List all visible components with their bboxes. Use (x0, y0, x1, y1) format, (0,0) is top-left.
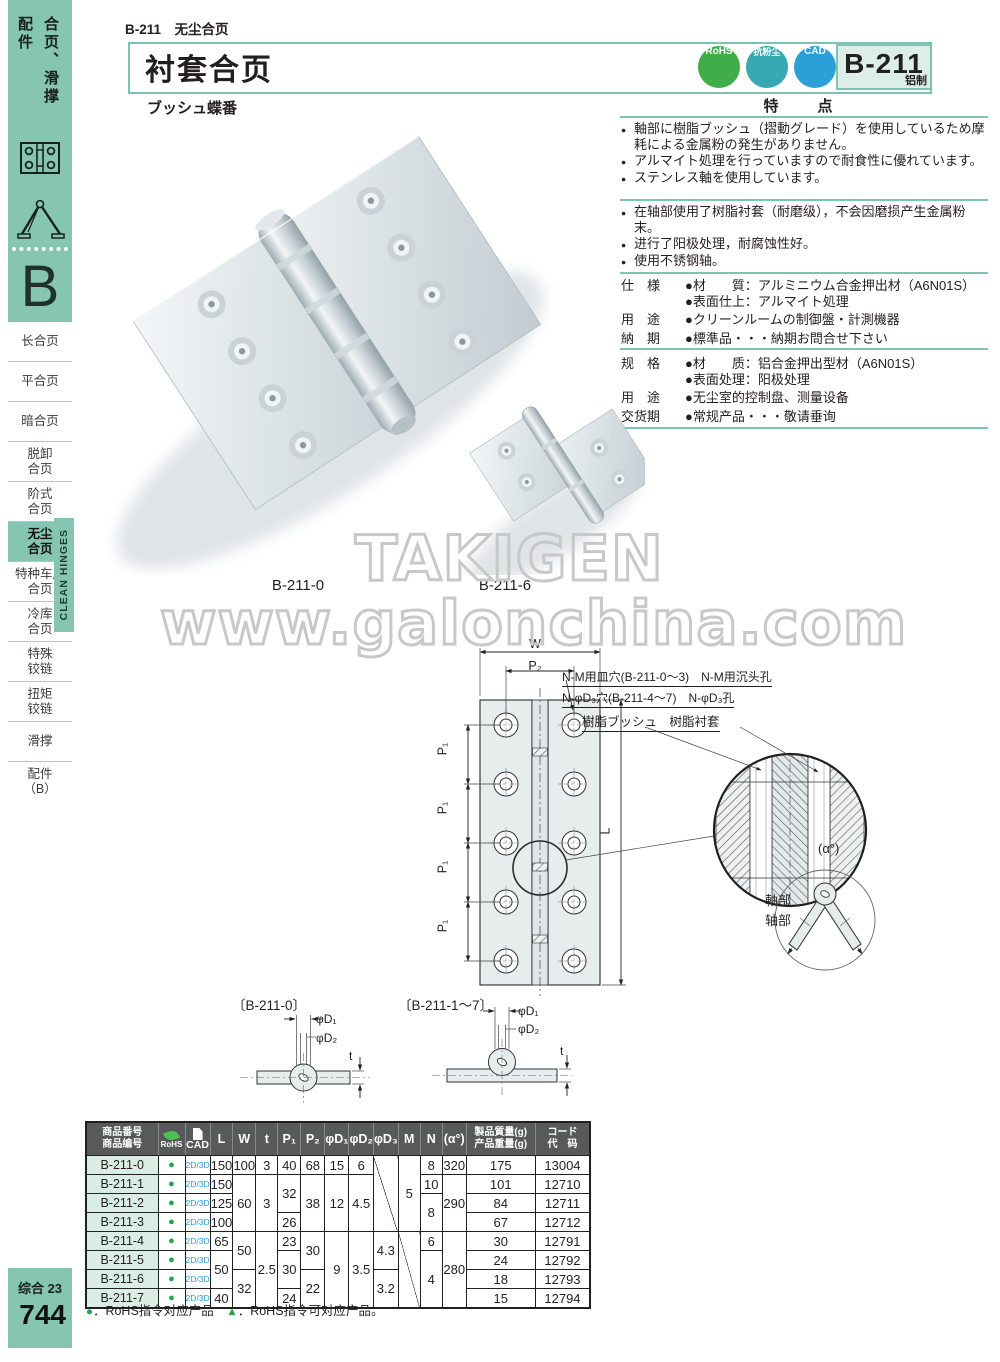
col-header-code: コード代 码 (535, 1122, 590, 1156)
value-cell: 32 (278, 1175, 301, 1213)
rohs-dot-cell: ● (158, 1175, 185, 1194)
sidebar-item-阶式合页: 阶式合页 (8, 481, 72, 521)
spec-row: 仕 様●材 質：アルミニウム合金押出材（A6N01S）●表面仕上：アルマイト処理 (621, 278, 988, 309)
clean-hinges-label: CLEAN HINGES (58, 529, 70, 620)
sidebar-item-扭矩铰链: 扭矩铰链 (8, 681, 72, 721)
value-cell: 15 (466, 1289, 535, 1309)
rohs-dot-cell: ● (158, 1194, 185, 1213)
value-cell: 24 (466, 1251, 535, 1270)
sidebar-footer-block: 综合 23 744 (8, 1268, 72, 1348)
sidebar-category-right: 合页、滑撑 (40, 16, 61, 106)
spec-table: 商品番号商品编号RoHSCADLWtP₁P₂φD₁φD₂φD₃MN(α°)製品質… (85, 1121, 591, 1309)
value-cell: 12710 (535, 1175, 590, 1194)
not-applicable-cell (398, 1232, 420, 1309)
value-cell: 23 (278, 1232, 301, 1251)
doc-icon (193, 1128, 203, 1140)
divider (620, 348, 988, 350)
breadcrumb: B-211 无尘合页 (125, 18, 229, 38)
col-header-product: 商品番号商品编号 (86, 1122, 158, 1156)
cad-link-cell: 2D/3D (185, 1213, 210, 1232)
value-cell: 15 (325, 1156, 349, 1175)
hole-note-cn: N-φD₃穴(B-211-4～7) N-φD₃孔 (562, 689, 734, 708)
value-cell: 84 (466, 1194, 535, 1213)
col-header-t: t (256, 1122, 278, 1156)
dim-l: L (598, 828, 612, 835)
value-cell: 26 (278, 1213, 301, 1232)
rohs-dot-cell: ● (158, 1232, 185, 1251)
dim-t: t (349, 1049, 352, 1063)
col-header-D1: φD₁ (325, 1122, 349, 1156)
dim-p1: P₁ (435, 861, 449, 874)
photo-label-large: B-211-0 (248, 577, 348, 594)
sidebar-item-长合页: 长合页 (8, 322, 72, 361)
photo-label-small: B-211-6 (455, 577, 555, 594)
product-code-cell: B-211-0 (86, 1156, 158, 1175)
value-cell: 12792 (535, 1251, 590, 1270)
value-cell: 150 (210, 1156, 233, 1175)
product-code-cell: B-211-1 (86, 1175, 158, 1194)
sidebar-item-滑撑: 滑撑 (8, 721, 72, 761)
value-cell: 5 (398, 1156, 420, 1232)
rohs-legend: ●：RoHS指令对应产品 ▲：RoHS指令可对应产品。 (86, 1300, 384, 1319)
sidebar-category-left: 配件 (14, 16, 35, 106)
divider (620, 272, 988, 274)
cad-link-cell: 2D/3D (185, 1175, 210, 1194)
spec-row: 交货期●常规产品・・・敬请垂询 (621, 409, 988, 425)
product-photo (85, 105, 645, 575)
spec-row: 用 途●无尘室的控制盘、测量设备 (621, 390, 988, 406)
rohs-dot-cell: ● (158, 1213, 185, 1232)
sidebar-item-暗合页: 暗合页 (8, 401, 72, 441)
angle-label: (α°) (818, 841, 839, 856)
spec-row: 納 期●標準品・・・納期お問合せ下さい (621, 331, 988, 347)
value-cell: 150 (210, 1175, 233, 1194)
rohs-badge: RoHS (698, 46, 740, 88)
value-cell: 18 (466, 1270, 535, 1289)
value-cell: 280 (442, 1232, 466, 1309)
spec-row: 用 途●クリーンルームの制御盤・計測機器 (621, 312, 988, 328)
divider (620, 199, 988, 201)
page-number: 744 (8, 1299, 72, 1331)
bush-label: 樹脂ブッシュ 树脂衬套 (582, 711, 720, 732)
clean-hinges-tab: CLEAN HINGES (54, 518, 74, 632)
value-cell: 12791 (535, 1232, 590, 1251)
spec-lines: ●常规产品・・・敬请垂询 (685, 409, 836, 425)
specs-cn-block: 规 格●材 质：铝合金押出型材（A6N01S）●表面处理：阳极处理用 途●无尘室… (621, 356, 988, 427)
spec-lines: ●材 质：铝合金押出型材（A6N01S）●表面处理：阳极处理 (685, 356, 923, 387)
col-header-L: L (210, 1122, 233, 1156)
value-cell: 12 (325, 1175, 349, 1232)
value-cell: 4.5 (349, 1175, 374, 1232)
cad-link-cell: 2D/3D (185, 1194, 210, 1213)
cad-link-cell: 2D/3D (185, 1156, 210, 1175)
product-code-cell: B-211-3 (86, 1213, 158, 1232)
spec-lines: ●標準品・・・納期お問合せ下さい (685, 331, 888, 347)
col-header-P2: P₂ (301, 1122, 325, 1156)
dim-p1: P₁ (435, 743, 449, 756)
cad-link-cell: 2D/3D (185, 1270, 210, 1289)
shaft-label-jp: 軸部 (765, 890, 791, 909)
value-cell: 60 (233, 1175, 256, 1232)
catalog-section-label: 综合 23 (8, 1278, 72, 1297)
col-header-N: N (420, 1122, 442, 1156)
cad-badge: CAD (794, 46, 836, 88)
col-header-cad: CAD (185, 1122, 210, 1156)
not-applicable-cell (373, 1156, 398, 1232)
dim-d2: φD₂ (518, 1022, 539, 1036)
col-header-M: M (398, 1122, 420, 1156)
value-cell: 100 (233, 1156, 256, 1175)
product-code-cell: B-211-6 (86, 1270, 158, 1289)
value-cell: 12794 (535, 1289, 590, 1309)
sidebar-item-脱卸合页: 脱卸合页 (8, 441, 72, 481)
technical-drawing (420, 630, 1000, 1010)
divider (620, 427, 988, 429)
specs-jp-block: 仕 様●材 質：アルミニウム合金押出材（A6N01S）●表面仕上：アルマイト処理… (621, 278, 988, 349)
dim-p2: P₂ (520, 659, 550, 673)
features-title: 特 点 (620, 95, 988, 116)
col-header-weight: 製品質量(g)产品重量(g) (466, 1122, 535, 1156)
col-header-alpha: (α°) (442, 1122, 466, 1156)
dim-d2: φD₂ (316, 1031, 337, 1045)
shaft-label-cn: 轴部 (765, 910, 791, 929)
anti-dust-badge: 抗粉尘 (746, 46, 788, 88)
legend-text: ：RoHS指令可对应产品。 (238, 1304, 384, 1318)
value-cell: 30 (301, 1232, 325, 1270)
feature-bullet: 使用不锈钢轴。 (621, 253, 988, 269)
col-header-P1: P₁ (278, 1122, 301, 1156)
rohs-dot-cell: ● (158, 1251, 185, 1270)
product-code-cell: B-211-5 (86, 1251, 158, 1270)
features-cn-list: 在轴部使用了树脂衬套（耐磨级），不会因磨损产生金属粉末。进行了阳极处理，耐腐蚀性… (621, 204, 988, 269)
spec-lines: ●クリーンルームの制御盤・計測機器 (685, 312, 900, 328)
dim-d1: φD₁ (316, 1012, 337, 1026)
feature-bullet: 在轴部使用了树脂衬套（耐磨级），不会因磨损产生金属粉末。 (621, 204, 988, 235)
value-cell: 175 (466, 1156, 535, 1175)
value-cell: 100 (210, 1213, 233, 1232)
value-cell: 3 (256, 1156, 278, 1175)
value-cell: 3 (256, 1175, 278, 1232)
rohs-triangle-symbol: ▲ (226, 1306, 237, 1318)
spec-lines: ●材 質：アルミニウム合金押出材（A6N01S）●表面仕上：アルマイト処理 (685, 278, 975, 309)
value-cell: 2.5 (256, 1232, 278, 1309)
value-cell: 30 (278, 1251, 301, 1289)
legend-text: ：RoHS指令对应产品 (93, 1304, 226, 1318)
value-cell: 50 (233, 1232, 256, 1270)
feature-bullet: 进行了阳极处理，耐腐蚀性好。 (621, 236, 988, 252)
features-jp-list: 軸部に樹脂ブッシュ（摺動グレード）を使用しているため摩耗による金属粉の発生があり… (621, 121, 988, 186)
divider (620, 116, 988, 118)
catalog-page: 配件 合页、滑撑 B 长合页平合页暗合页脱卸合页阶式合页无尘合页特种车用合页冷库… (0, 0, 1000, 1362)
value-cell: 50 (210, 1251, 233, 1289)
value-cell: 65 (210, 1232, 233, 1251)
spec-lines: ●无尘室的控制盘、测量设备 (685, 390, 849, 406)
dim-w: W (520, 637, 550, 651)
value-cell: 13004 (535, 1156, 590, 1175)
product-code-cell: B-211-2 (86, 1194, 158, 1213)
value-cell: 9 (325, 1232, 349, 1309)
feature-bullet: 軸部に樹脂ブッシュ（摺動グレード）を使用しているため摩耗による金属粉の発生があり… (621, 121, 988, 152)
sidebar-category: 配件 合页、滑撑 (14, 16, 61, 106)
spec-row: 规 格●材 质：铝合金押出型材（A6N01S）●表面处理：阳极处理 (621, 356, 988, 387)
col-header-W: W (233, 1122, 256, 1156)
value-cell: 30 (466, 1232, 535, 1251)
cad-badge-label: CAD (794, 46, 836, 58)
value-cell: 12793 (535, 1270, 590, 1289)
value-cell: 8 (420, 1194, 442, 1232)
value-cell: 67 (466, 1213, 535, 1232)
value-cell: 290 (442, 1175, 466, 1232)
hinge-icon (18, 136, 62, 180)
col-header-rohs: RoHS (158, 1122, 185, 1156)
value-cell: 4.3 (373, 1232, 398, 1270)
value-cell: 38 (301, 1175, 325, 1232)
col-header-D3: φD₃ (373, 1122, 398, 1156)
rohs-dot-cell: ● (158, 1270, 185, 1289)
dim-p1: P₁ (435, 802, 449, 815)
value-cell: 10 (420, 1175, 442, 1194)
value-cell: 8 (420, 1156, 442, 1175)
page-title: 衬套合页 (145, 45, 273, 89)
material-tag: 铝制 (905, 72, 927, 88)
feature-bullet: ステンレス軸を使用しています。 (621, 170, 988, 186)
model-number-box: B-211 铝制 (836, 44, 932, 90)
section-title-1-7: 〔B-211-1～7〕 (398, 994, 493, 1014)
value-cell: 6 (420, 1232, 442, 1251)
cad-link-cell: 2D/3D (185, 1251, 210, 1270)
sidebar-item-平合页: 平合页 (8, 361, 72, 401)
sidebar-dotted-divider (12, 247, 68, 251)
hole-note-jp: N-M用皿穴(B-211-0～3) N-M用沉头孔 (562, 668, 772, 687)
value-cell: 125 (210, 1194, 233, 1213)
value-cell: 68 (301, 1156, 325, 1175)
rohs-badge-label: RoHS (698, 46, 740, 58)
value-cell: 6 (349, 1156, 374, 1175)
chapter-letter: B (8, 252, 72, 322)
feature-bullet: アルマイト処理を行っていますので耐食性に優れています。 (621, 153, 988, 169)
value-cell: 40 (278, 1156, 301, 1175)
section-title-0: 〔B-211-0〕 (232, 994, 306, 1014)
sidebar-item-配件（B）: 配件（B） (8, 761, 72, 801)
value-cell: 3.5 (349, 1232, 374, 1309)
sidebar-item-特殊铰链: 特殊铰链 (8, 641, 72, 681)
value-cell: 4 (420, 1251, 442, 1309)
dust-badge-label: 抗粉尘 (746, 46, 788, 58)
value-cell: 12711 (535, 1194, 590, 1213)
value-cell: 12712 (535, 1213, 590, 1232)
value-cell: 101 (466, 1175, 535, 1194)
cross-sections (80, 995, 660, 1120)
stay-icon (14, 192, 66, 242)
rohs-dot-cell: ● (158, 1156, 185, 1175)
rohs-dot-symbol: ● (86, 1306, 93, 1318)
cad-link-cell: 2D/3D (185, 1232, 210, 1251)
dim-t: t (560, 1044, 563, 1058)
dim-d1: φD₁ (518, 1004, 539, 1018)
value-cell: 320 (442, 1156, 466, 1175)
col-header-D2: φD₂ (349, 1122, 374, 1156)
product-code-cell: B-211-4 (86, 1232, 158, 1251)
dim-p1: P₁ (435, 920, 449, 933)
